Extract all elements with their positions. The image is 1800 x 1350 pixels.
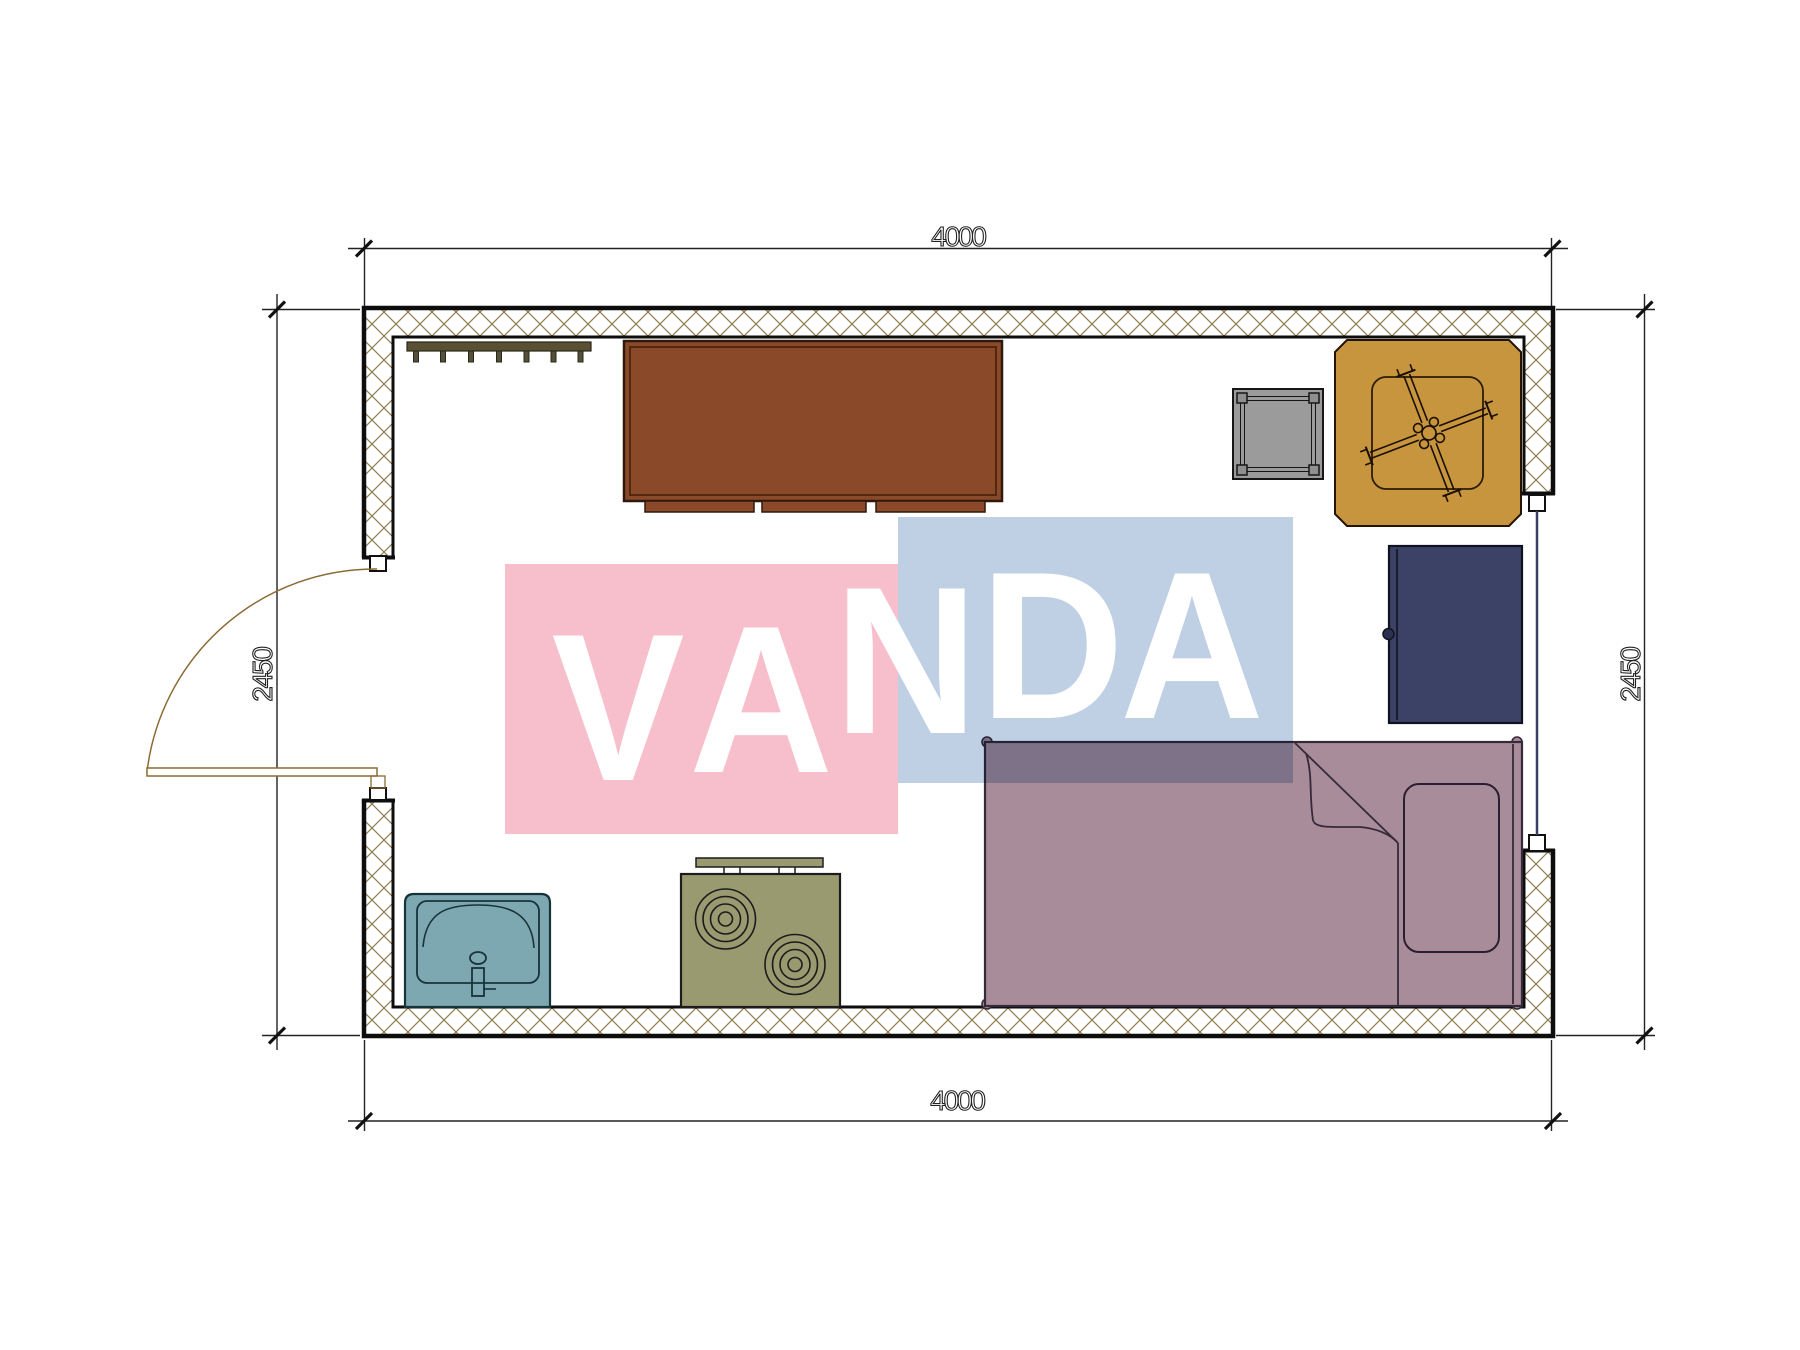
svg-text:4000: 4000	[931, 221, 986, 252]
svg-text:2450: 2450	[1615, 647, 1646, 702]
svg-text:A: A	[1120, 529, 1264, 763]
svg-text:4000: 4000	[930, 1085, 985, 1116]
svg-text:D: D	[980, 529, 1124, 763]
svg-text:A: A	[689, 583, 833, 817]
svg-text:2450: 2450	[247, 647, 278, 702]
svg-text:V: V	[551, 591, 684, 825]
svg-text:N: N	[834, 544, 978, 778]
